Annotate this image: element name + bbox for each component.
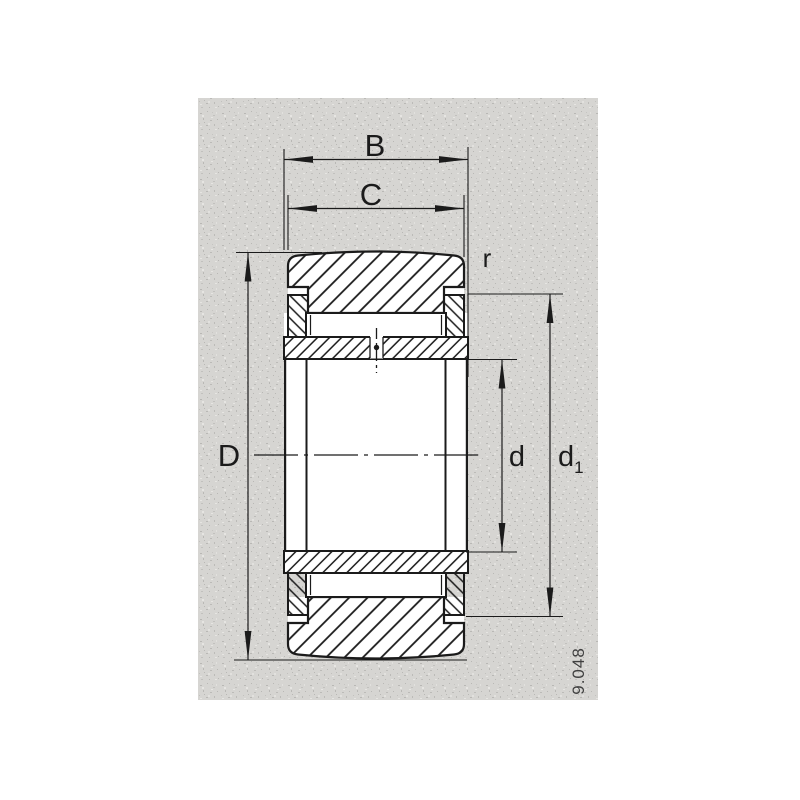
label-width-B: B xyxy=(365,128,386,163)
label-d1-base: d xyxy=(558,441,574,473)
needle-roller-bottom xyxy=(306,573,446,597)
label-width-C: C xyxy=(360,177,382,212)
label-outside-diameter-D: D xyxy=(218,438,240,473)
inner-ring-bottom-section xyxy=(284,551,468,573)
label-d1-subscript: 1 xyxy=(574,458,583,477)
bearing-cross-section xyxy=(254,252,484,659)
scanned-catalog-page: B C D d d1 r 9.048 xyxy=(0,0,800,800)
label-corner-radius-r: r xyxy=(483,243,492,273)
figure-number: 9.048 xyxy=(569,647,588,695)
label-bore-diameter-d: d xyxy=(509,441,525,473)
outer-ring-top-section xyxy=(288,252,464,314)
track-roller-bearing-section-drawing: B C D d d1 r 9.048 xyxy=(0,0,800,800)
outer-ring-bottom-section xyxy=(288,597,464,659)
